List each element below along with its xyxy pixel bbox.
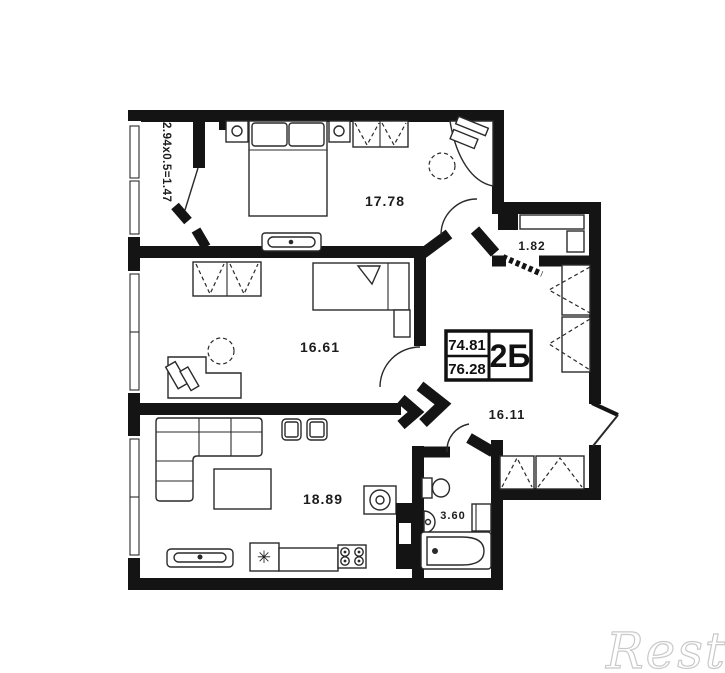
kitchen-counter (279, 548, 338, 571)
living-kitchen-furniture: ✳ (156, 418, 414, 571)
wall-bedroom1-door-diag-right (475, 230, 495, 253)
label-bedroom1-area: 17.78 (365, 193, 405, 209)
dresser-handle (289, 240, 294, 245)
closet-shelf-top (520, 215, 584, 229)
hall-wardrobe-3 (500, 456, 534, 489)
stamp-area-top: 74.81 (448, 337, 486, 354)
stamp-area-bottom: 76.28 (448, 361, 486, 378)
watermark-text: Restate (606, 622, 725, 673)
desk-chair (429, 153, 455, 179)
coffee-table (214, 469, 271, 509)
bathroom-cabinet (472, 504, 491, 531)
label-closet-area: 1.82 (518, 239, 545, 253)
closet-sliding-door (503, 257, 542, 274)
label-hallway-area: 16.11 (489, 407, 526, 422)
vent-shaft-slit (399, 523, 411, 544)
wall-pier-closet (498, 214, 518, 230)
label-bathroom-area: 3.60 (440, 510, 465, 522)
nightstand-left (226, 121, 248, 142)
bathtub-drain (432, 548, 438, 554)
closet-shelf-side (567, 231, 584, 252)
toilet-bowl (433, 479, 450, 497)
bathroom-fixtures (421, 478, 491, 569)
pillow-left (252, 123, 287, 146)
wall-kitchen-cap (401, 399, 416, 425)
bedroom2-door-arc (380, 347, 420, 387)
label-living-area: 18.89 (303, 491, 343, 507)
desk2-chair (208, 338, 234, 364)
label-bedroom2-area: 16.61 (300, 339, 340, 355)
wall-hall-zigzag (420, 386, 443, 423)
wall-bath-chamfer (469, 438, 493, 452)
wall-balcony-chamfer-b (196, 230, 206, 247)
burner-4-dot (358, 560, 361, 563)
stamp-unit-type: 2Б (490, 338, 531, 374)
entrance-threshold (593, 415, 618, 446)
bathroom-door-arc (447, 424, 469, 452)
hall-wardrobe-1 (562, 265, 590, 315)
wall-bedroom1-door-diag-left (422, 234, 449, 254)
entrance-door-leaf (592, 403, 618, 415)
hall-wardrobe-2 (562, 317, 590, 372)
bedroom1-furniture (226, 116, 493, 251)
pillow-right (289, 123, 324, 146)
toilet-tank (422, 478, 432, 498)
label-balcony-dimensions: 2.94x0.5=1.47 (160, 122, 172, 202)
tv-stand-knob (198, 555, 203, 560)
hall-wardrobe-4 (536, 456, 584, 489)
balcony-door-leaf (185, 168, 198, 210)
bedroom1-door-arc (441, 199, 477, 235)
sink-symbol: ✳ (257, 548, 271, 567)
nightstand-right (329, 121, 350, 142)
bedroom2-furniture (166, 262, 410, 398)
title-block: 74.81 76.28 2Б (446, 331, 531, 380)
floor-plan-svg: ✳ (0, 0, 725, 673)
burner-1-dot (344, 551, 347, 554)
burner-2-dot (358, 551, 361, 554)
burner-3-dot (344, 560, 347, 563)
floor-plan-image: ✳ (0, 0, 725, 673)
windows (127, 121, 141, 558)
nightstand-bedroom2 (394, 310, 410, 337)
